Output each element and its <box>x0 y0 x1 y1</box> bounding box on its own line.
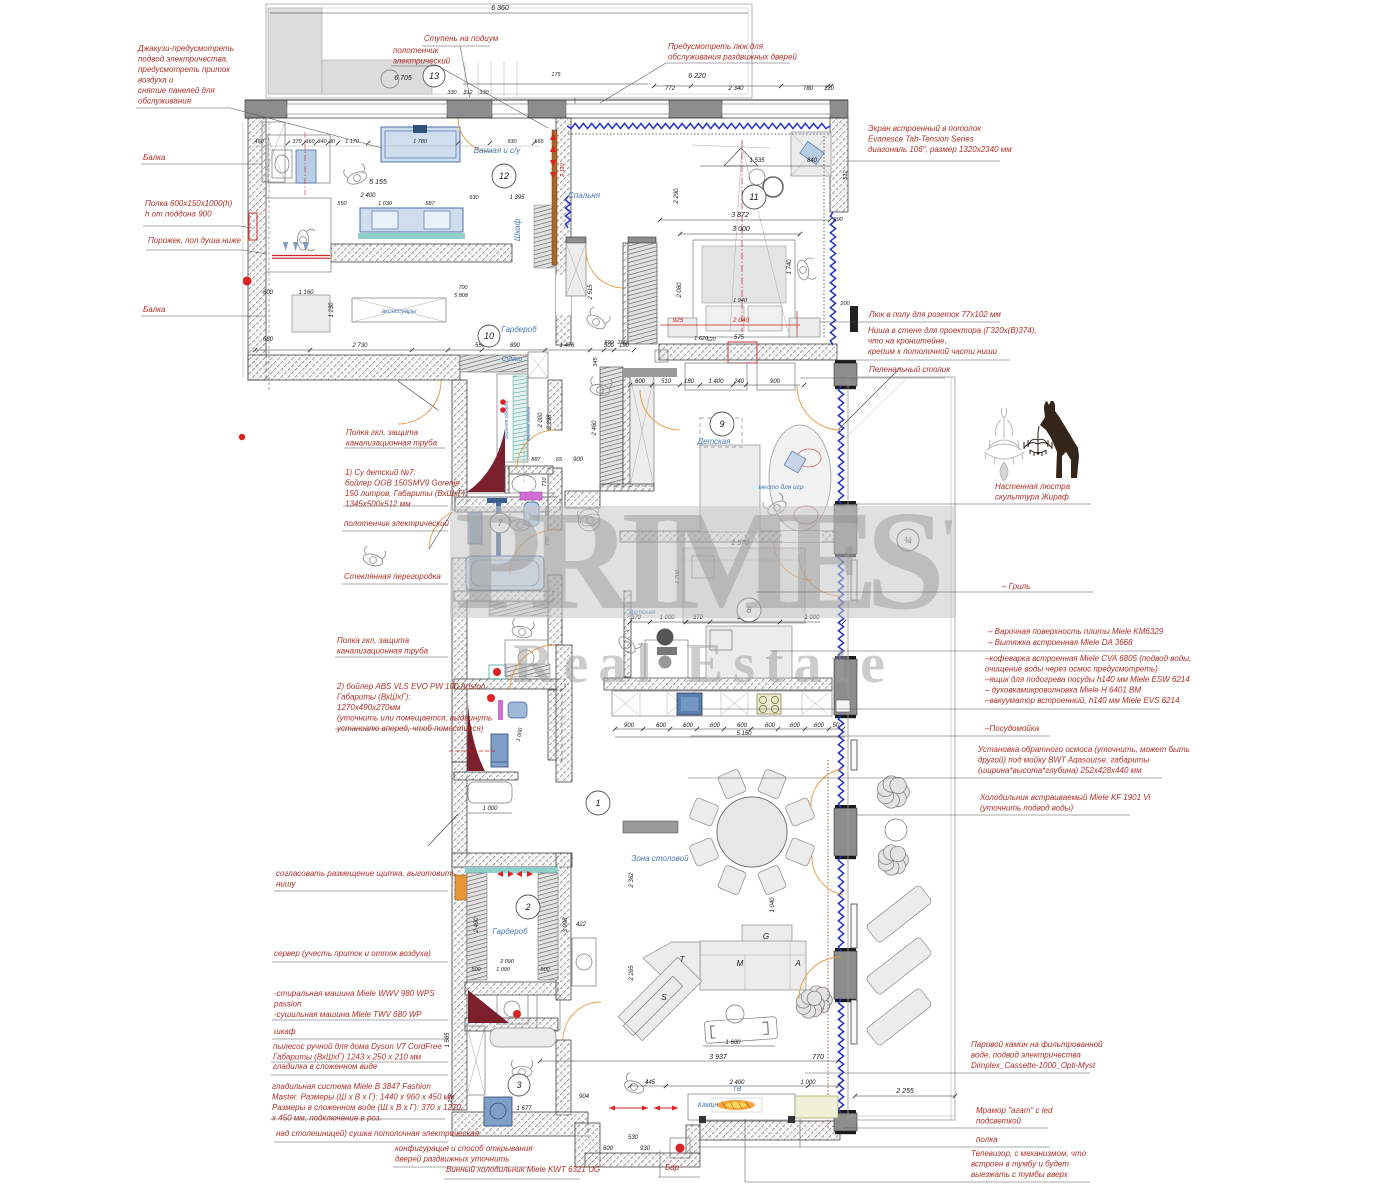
svg-text:2 362: 2 362 <box>629 872 635 889</box>
svg-text:6 360: 6 360 <box>491 5 509 12</box>
svg-text:скульптура Жираф: скульптура Жираф <box>995 493 1069 502</box>
svg-text:нишу: нишу <box>276 880 296 889</box>
svg-text:2) бойлер ABS VLS EVO PW 100 A: 2) бойлер ABS VLS EVO PW 100 Ariston <box>336 682 486 691</box>
svg-text:1 535: 1 535 <box>749 158 765 164</box>
svg-text:500: 500 <box>471 967 481 973</box>
svg-text:6 705: 6 705 <box>394 75 412 82</box>
svg-text:770: 770 <box>812 1054 824 1061</box>
svg-text:1: 1 <box>595 798 600 808</box>
svg-text:Верхняя одежда: Верхняя одежда <box>504 401 510 439</box>
svg-text:установлю вперед, чтоб помести: установлю вперед, чтоб поместился) <box>336 724 484 733</box>
svg-text:Винный холодильник Miele KWT 6: Винный холодильник Miele KWT 6321 UG <box>446 1165 600 1174</box>
svg-text:530: 530 <box>628 1135 639 1141</box>
svg-text:1 940: 1 940 <box>733 298 748 304</box>
svg-text:Dimplex_Cassette-1000_Opti-Mys: Dimplex_Cassette-1000_Opti-Myst <box>971 1061 1096 1070</box>
svg-text:подсветкой: подсветкой <box>976 1117 1022 1126</box>
svg-text:600: 600 <box>603 1146 614 1152</box>
svg-text:930: 930 <box>507 139 517 145</box>
svg-text:Ступень на подиум: Ступень на подиум <box>424 34 499 43</box>
svg-text:Предусмотреть люк для: Предусмотреть люк для <box>668 42 764 51</box>
svg-text:2 730: 2 730 <box>351 343 368 349</box>
svg-text:840: 840 <box>807 158 818 164</box>
svg-text:200: 200 <box>832 217 843 223</box>
svg-text:Полка гкл, защита: Полка гкл, защита <box>337 636 410 645</box>
svg-text:9: 9 <box>719 419 724 429</box>
svg-text:510: 510 <box>661 379 672 385</box>
svg-text:3 937: 3 937 <box>709 1054 728 1061</box>
svg-text:587: 587 <box>425 201 435 207</box>
svg-text:Порожек, пол душа ниже: Порожек, пол душа ниже <box>148 236 242 245</box>
svg-text:2 000: 2 000 <box>538 412 544 429</box>
svg-text:пылесос ручной для дома Dyson: пылесос ручной для дома Dyson V7 CordFre… <box>273 1042 442 1051</box>
svg-text:Стеклянная перегородка: Стеклянная перегородка <box>344 572 441 581</box>
svg-text:1 090: 1 090 <box>496 967 511 973</box>
svg-text:600: 600 <box>683 723 694 729</box>
svg-text:Бар: Бар <box>665 1163 680 1172</box>
svg-text:550: 550 <box>337 201 347 207</box>
svg-text:620: 620 <box>706 337 716 343</box>
svg-text:1 000: 1 000 <box>482 806 498 812</box>
svg-text:бойлер OGB 150SMV9 Gorenje: бойлер OGB 150SMV9 Gorenje <box>345 479 460 488</box>
svg-text:1 476: 1 476 <box>559 343 575 349</box>
svg-text:370: 370 <box>292 139 302 145</box>
svg-text:5 808: 5 808 <box>454 293 469 299</box>
svg-text:Шкаф: Шкаф <box>513 219 522 242</box>
svg-text:2: 2 <box>524 902 530 912</box>
svg-text:1 160: 1 160 <box>298 290 314 296</box>
svg-text:конфигурация и способ открыван: конфигурация и способ открывания <box>395 1144 533 1153</box>
svg-text:– Варочная поверхность плиты M: – Варочная поверхность плиты Miele KM632… <box>987 627 1164 636</box>
svg-text:Гардероб: Гардероб <box>492 927 528 936</box>
svg-text:12: 12 <box>499 171 509 181</box>
svg-text:– Вытяжка встроенная Miele DA: – Вытяжка встроенная Miele DA 3668 <box>987 638 1133 647</box>
svg-text:900: 900 <box>573 457 584 463</box>
svg-text:дверей раздвижных уточнить: дверей раздвижных уточнить <box>395 1155 509 1164</box>
svg-text:630: 630 <box>469 195 479 201</box>
svg-text:900: 900 <box>770 379 781 385</box>
svg-text:выезжать с тумбы вверх: выезжать с тумбы вверх <box>971 1170 1069 1179</box>
svg-text:2 040: 2 040 <box>732 317 750 324</box>
svg-text:Установка обратного осмоса (ут: Установка обратного осмоса (уточнить, мо… <box>977 745 1190 754</box>
svg-text:1270х490х270мм: 1270х490х270мм <box>337 703 401 712</box>
svg-text:крепим к потолочной части ниши: крепим к потолочной части ниши <box>868 347 998 356</box>
svg-text:180: 180 <box>684 379 695 385</box>
svg-text:330: 330 <box>479 90 489 96</box>
svg-text:A: A <box>794 959 800 968</box>
svg-text:175: 175 <box>551 72 561 78</box>
svg-text:Зона столовой: Зона столовой <box>631 854 689 863</box>
svg-text:– Гриль: – Гриль <box>1001 582 1030 591</box>
svg-text:ТВ: ТВ <box>733 1086 742 1093</box>
svg-text:-сушильная машина Miele TWV 68: -сушильная машина Miele TWV 680 WP <box>274 1010 422 1019</box>
svg-text:Экран встроенный в потолок: Экран встроенный в потолок <box>868 124 982 133</box>
svg-text:подвод электричества,: подвод электричества, <box>138 55 228 64</box>
svg-text:2 490: 2 490 <box>474 917 480 934</box>
svg-text:х 450 мм, подключение в роз.: х 450 мм, подключение в роз. <box>271 1114 382 1123</box>
svg-text:Габариты (ВхШхГ) 1243 х 250 х: Габариты (ВхШхГ) 1243 х 250 х 210 мм <box>273 1053 422 1062</box>
svg-text:50: 50 <box>833 723 840 729</box>
svg-text:снятие панелей для: снятие панелей для <box>138 86 215 95</box>
svg-text:2 400: 2 400 <box>359 193 376 199</box>
svg-text:(уточнить или помещается, выдв: (уточнить или помещается, выдвинуть <box>337 714 492 723</box>
svg-text:2 298: 2 298 <box>547 414 553 431</box>
svg-text:встроен в тумбу и будет: встроен в тумбу и будет <box>971 1160 1069 1169</box>
svg-text:240: 240 <box>733 379 745 385</box>
svg-text:Master. Размеры (Ш х В х Г): 1: Master. Размеры (Ш х В х Г): 1440 х 960 … <box>272 1093 455 1102</box>
svg-text:1 040: 1 040 <box>770 897 776 913</box>
svg-text:2 515: 2 515 <box>588 284 594 301</box>
svg-text:полотенчик: полотенчик <box>393 46 440 55</box>
svg-text:1 400: 1 400 <box>708 379 724 385</box>
svg-text:Полка гкл, защита: Полка гкл, защита <box>346 428 419 437</box>
svg-text:11: 11 <box>749 192 758 202</box>
svg-text:1 230: 1 230 <box>329 302 335 318</box>
svg-text:772: 772 <box>665 86 676 92</box>
svg-text:190: 190 <box>617 340 627 346</box>
svg-text:2 255: 2 255 <box>895 1088 914 1095</box>
svg-text:гладильная система Miele B 3: гладильная система Miele B 3847 Fashion <box>272 1082 431 1091</box>
svg-text:Холодильник встраиваемый Miel: Холодильник встраиваемый Miele KF 1901 V… <box>979 793 1150 802</box>
svg-text:930: 930 <box>640 1146 651 1152</box>
svg-text:h от поддона 900: h от поддона 900 <box>145 210 212 219</box>
svg-text:150 литров, Габариты (ВхШхГ):: 150 литров, Габариты (ВхШхГ): <box>345 489 467 498</box>
svg-text:2 110: 2 110 <box>560 162 566 177</box>
svg-text:890: 890 <box>510 343 521 349</box>
svg-text:предусмотреть приток: предусмотреть приток <box>138 65 231 74</box>
svg-text:13: 13 <box>429 71 439 81</box>
svg-text:780: 780 <box>803 86 814 92</box>
svg-text:1 000: 1 000 <box>800 1080 816 1086</box>
svg-text:канализационная труба: канализационная труба <box>346 439 438 448</box>
svg-text:65: 65 <box>556 457 563 463</box>
svg-text:M: M <box>737 959 744 968</box>
svg-text:другой) под мойку BWT Aqasours: другой) под мойку BWT Aqasourse, габарит… <box>978 756 1149 765</box>
svg-text:Evanesce Tab-Tension Series: Evanesce Tab-Tension Series <box>868 135 974 144</box>
svg-text:диагональ 106", размер 1320х23: диагональ 106", размер 1320х2340 мм <box>868 145 1012 154</box>
svg-text:Гардероб: Гардероб <box>501 325 537 334</box>
svg-text:канализационная труба: канализационная труба <box>337 647 429 656</box>
svg-text:10: 10 <box>484 331 494 341</box>
svg-text:30: 30 <box>329 139 336 145</box>
svg-text:1 677: 1 677 <box>516 1106 532 1112</box>
svg-text:600: 600 <box>656 723 667 729</box>
svg-text:1 170: 1 170 <box>345 139 360 145</box>
svg-text:полотенчик электрический: полотенчик электрический <box>344 519 450 528</box>
svg-text:1 600: 1 600 <box>725 1040 741 1046</box>
svg-text:–ящик для подогрева посуды h14: –ящик для подогрева посуды h140 мм Miele… <box>984 675 1190 684</box>
svg-text:600: 600 <box>737 723 748 729</box>
svg-text:1 740: 1 740 <box>787 259 793 275</box>
svg-text:1 030: 1 030 <box>378 201 393 207</box>
svg-text:445: 445 <box>645 1080 656 1086</box>
svg-text:565: 565 <box>534 139 544 145</box>
svg-text:обслуживания: обслуживания <box>138 97 192 106</box>
svg-text:Паровой камин на фильтрованной: Паровой камин на фильтрованной <box>971 1040 1103 1049</box>
svg-text:1 395: 1 395 <box>509 195 525 201</box>
svg-text:(уточнить подвод воды): (уточнить подвод воды) <box>980 804 1074 813</box>
svg-text:Спальня: Спальня <box>568 191 601 200</box>
svg-text:': ' <box>940 507 957 573</box>
svg-text:340: 340 <box>317 139 327 145</box>
svg-text:360: 360 <box>305 139 315 145</box>
svg-text:Полка 600х150х1000(h): Полка 600х150х1000(h) <box>145 199 233 208</box>
svg-text:Балка: Балка <box>143 305 166 314</box>
svg-text:575: 575 <box>734 335 745 341</box>
svg-text:925: 925 <box>673 317 684 324</box>
svg-text:450: 450 <box>254 139 264 145</box>
svg-text:PRIMES: PRIMES <box>455 481 945 639</box>
svg-text:обслуживания раздвижных дверей: обслуживания раздвижных дверей <box>668 53 797 62</box>
svg-text:3 998: 3 998 <box>563 917 569 933</box>
svg-text:–кофеварка встроенная Miele CV: –кофеварка встроенная Miele CVA 6805 (по… <box>984 654 1191 663</box>
svg-text:Балка: Балка <box>143 153 166 162</box>
svg-text:что на кронштейне,: что на кронштейне, <box>868 337 947 346</box>
svg-text:2 090: 2 090 <box>499 959 515 965</box>
svg-text:2 080: 2 080 <box>677 282 683 299</box>
svg-text:Размеры в сложенном виде (Ш х: Размеры в сложенном виде (Ш х В х Г): 37… <box>272 1103 461 1112</box>
svg-text:над столешницей) сушка потолоч: над столешницей) сушка потолочная электр… <box>276 1129 480 1138</box>
svg-text:1 780: 1 780 <box>413 139 428 145</box>
svg-text:600: 600 <box>765 723 776 729</box>
svg-text:500: 500 <box>540 967 550 973</box>
svg-text:200: 200 <box>839 301 850 307</box>
svg-text:904: 904 <box>579 1094 590 1100</box>
svg-text:700: 700 <box>458 285 468 291</box>
svg-text:422: 422 <box>576 922 587 928</box>
svg-text:–вакууматор встроенный, h140: –вакууматор встроенный, h140 мм Miele EV… <box>984 696 1180 705</box>
svg-text:1345х500х512 мм: 1345х500х512 мм <box>345 500 411 509</box>
svg-text:600: 600 <box>790 723 801 729</box>
svg-text:воде, подвод электричества: воде, подвод электричества <box>971 1051 1081 1060</box>
svg-text:гладилка в сложенном виде: гладилка в сложенном виде <box>273 1062 378 1071</box>
svg-text:Верхняя одежда: Верхняя одежда <box>526 406 531 441</box>
svg-text:6 220: 6 220 <box>688 73 706 80</box>
svg-text:2 460: 2 460 <box>592 420 598 437</box>
svg-text:полка: полка <box>976 1135 998 1144</box>
svg-text:(ширина*высота*глубина) 252х4: (ширина*высота*глубина) 252х428х440 мм <box>978 766 1142 775</box>
svg-text:шкаф: шкаф <box>274 1027 296 1036</box>
svg-text:Джакузи-предусмотреть: Джакузи-предусмотреть <box>137 44 234 53</box>
svg-text:Сумки: Сумки <box>502 356 523 363</box>
svg-text:сервер (учесть приток и отток: сервер (учесть приток и отток воздуха) <box>274 949 431 958</box>
svg-text:600: 600 <box>814 723 825 729</box>
svg-text:3 000: 3 000 <box>732 226 750 233</box>
svg-text:5 155: 5 155 <box>369 179 387 186</box>
svg-text:600: 600 <box>635 379 646 385</box>
svg-text:312: 312 <box>463 90 472 96</box>
svg-text:аксессуары: аксессуары <box>381 308 416 315</box>
svg-text:2 265: 2 265 <box>629 965 635 982</box>
svg-text:1 585: 1 585 <box>445 1032 451 1048</box>
svg-text:120: 120 <box>824 86 835 92</box>
svg-text:passion: passion <box>273 1000 302 1009</box>
svg-text:S: S <box>661 993 667 1002</box>
svg-text:–Посудомойка: –Посудомойка <box>984 724 1040 733</box>
svg-text:345: 345 <box>593 356 599 366</box>
svg-text:900: 900 <box>624 723 635 729</box>
svg-text:согласовать размещение щитка,: согласовать размещение щитка, выготовить <box>276 869 456 878</box>
svg-text:воздуха и: воздуха и <box>138 76 174 85</box>
svg-text:Ниша в стене для проектора (Г3: Ниша в стене для проектора (Г320х(В)374)… <box>868 326 1037 335</box>
svg-text:Детская: Детская <box>696 437 731 446</box>
svg-text:электрический: электрический <box>393 57 451 66</box>
svg-text:330: 330 <box>447 90 457 96</box>
svg-text:600: 600 <box>710 723 721 729</box>
svg-text:Настенная люстра: Настенная люстра <box>995 482 1071 491</box>
svg-text:Мрамор "агат" с led: Мрамор "агат" с led <box>976 1106 1053 1115</box>
svg-text:1) Су детский №7:: 1) Су детский №7: <box>345 468 416 477</box>
svg-text:очищение воды через осмос пред: очищение воды через осмос предусмотреть) <box>985 665 1158 674</box>
svg-text:Камин: Камин <box>698 1102 719 1109</box>
svg-text:887: 887 <box>531 457 541 463</box>
svg-text:Ванная и с/у: Ванная и с/у <box>474 146 521 155</box>
svg-text:600: 600 <box>263 290 274 296</box>
svg-text:2 340: 2 340 <box>727 86 744 92</box>
svg-text:3: 3 <box>516 1080 521 1090</box>
svg-text:Пеленальный столик: Пеленальный столик <box>869 365 951 374</box>
svg-text:500: 500 <box>604 340 614 346</box>
svg-text:Телевизор, с механизмом, что: Телевизор, с механизмом, что <box>971 1149 1087 1158</box>
svg-text:-стиральная машина Miele WWV: -стиральная машина Miele WWV 980 WPS <box>274 989 435 998</box>
svg-text:– духовкамикроволновка Miele: – духовкамикроволновка Miele H 6401 BM <box>984 686 1141 695</box>
svg-text:3 872: 3 872 <box>731 212 749 219</box>
svg-text:G: G <box>763 932 769 941</box>
svg-text:Габариты (ВхШхГ):: Габариты (ВхШхГ): <box>337 693 411 702</box>
svg-text:2 290: 2 290 <box>674 188 680 205</box>
svg-text:Люк в полу для розеток 77х102: Люк в полу для розеток 77х102 мм <box>868 310 1001 319</box>
svg-text:512: 512 <box>843 170 849 179</box>
svg-text:680: 680 <box>263 337 274 343</box>
